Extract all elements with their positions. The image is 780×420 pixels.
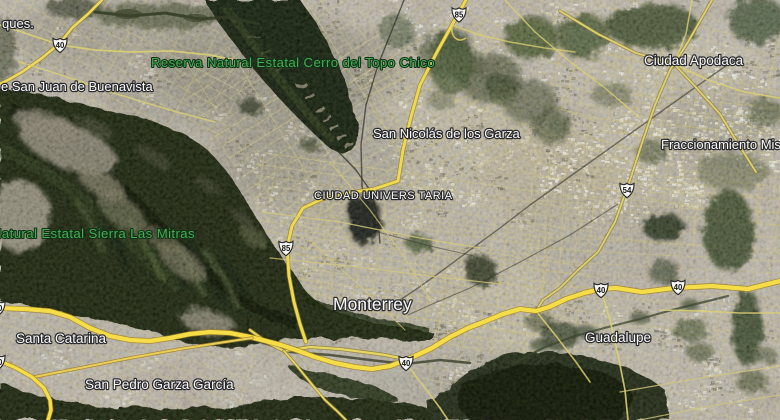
svg-text:ques.: ques. [2, 16, 34, 31]
svg-text:40: 40 [402, 359, 411, 368]
svg-text:San Pedro Garza García: San Pedro Garza García [85, 377, 234, 392]
svg-text:Monterrey: Monterrey [333, 294, 412, 314]
svg-text:San Nicolás de los Garza: San Nicolás de los Garza [373, 126, 520, 141]
svg-text:Santa Catarina: Santa Catarina [16, 331, 107, 346]
svg-text:85: 85 [282, 244, 291, 253]
svg-text:85: 85 [455, 11, 464, 20]
svg-text:Reserva Natural Estatal Cerro: Reserva Natural Estatal Cerro del Topo C… [151, 55, 435, 70]
svg-text:CIUDAD UNIVERS TARIA: CIUDAD UNIVERS TARIA [314, 190, 453, 202]
svg-text:Guadalupe: Guadalupe [585, 330, 651, 345]
svg-text:40: 40 [56, 41, 65, 50]
svg-text:Reserva Natural Estatal Sierra: Reserva Natural Estatal Sierra Las Mitra… [0, 226, 195, 241]
svg-text:e San Juan de Buenavista: e San Juan de Buenavista [1, 79, 154, 94]
svg-text:Fraccionamiento Misión: Fraccionamiento Misión [661, 137, 780, 152]
svg-text:40: 40 [597, 286, 606, 295]
svg-text:40: 40 [674, 283, 683, 292]
svg-text:54: 54 [623, 186, 632, 195]
svg-text:Ciudad Apodaca: Ciudad Apodaca [644, 53, 744, 68]
